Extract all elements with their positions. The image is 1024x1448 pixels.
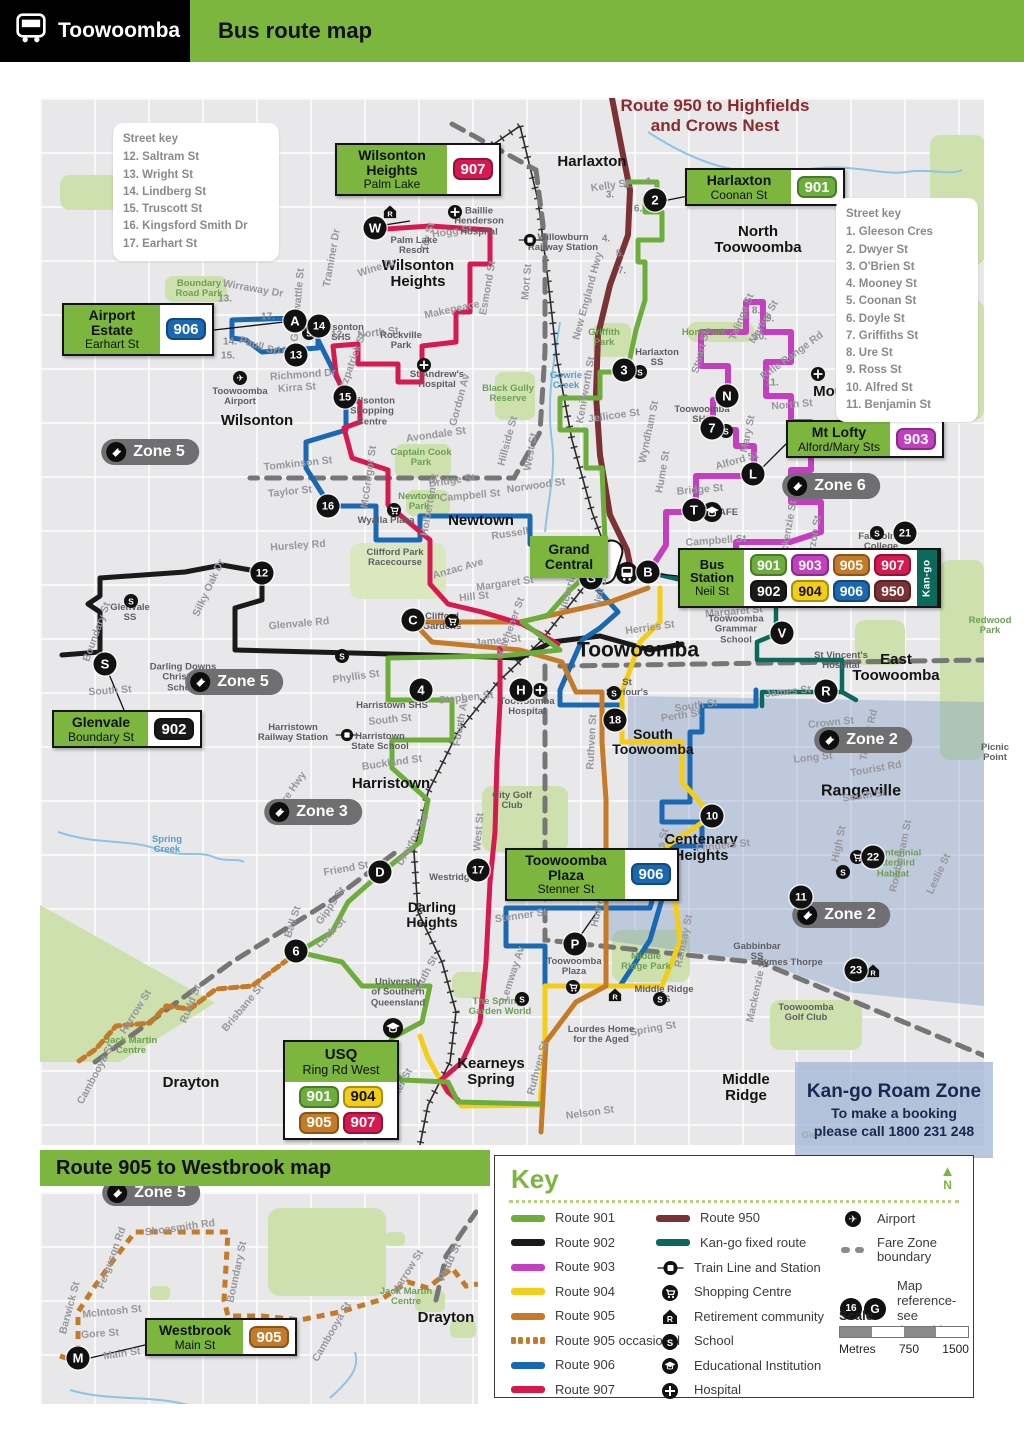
kango-roam-zone-box: Kan-go Roam Zone To make a booking pleas… (795, 1062, 993, 1158)
key-row-route-950: Route 950 (656, 1211, 760, 1226)
kango-box-title: Kan-go Roam Zone (801, 1081, 987, 1103)
key-row-route-906: Route 906 (511, 1358, 615, 1373)
page-title: Bus route map (218, 18, 372, 44)
key-label: Educational Institution (694, 1359, 821, 1374)
route-swatch-dashed (511, 1337, 545, 1344)
route-swatch (511, 1362, 545, 1369)
key-label: Kan-go fixed route (700, 1236, 806, 1251)
svg-text:S: S (667, 1337, 673, 1348)
key-label: Route 901 (555, 1211, 615, 1226)
key-row-train-line-and-station: Train Line and Station (656, 1260, 821, 1276)
app-header: Toowoomba Bus route map (0, 0, 1024, 62)
toowoomba-logo: Toowoomba (0, 0, 190, 62)
key-row-route-907: Route 907 (511, 1383, 615, 1398)
street-key-item: 9. Ross St (846, 362, 968, 379)
school-icon: S (656, 1334, 684, 1350)
key-row-airport: ✈Airport (839, 1211, 915, 1227)
key-label: Train Line and Station (694, 1261, 821, 1276)
key-row-route-905-occasional: Route 905 occasional (511, 1334, 680, 1349)
logo-text: Toowoomba (58, 19, 180, 43)
key-row-educational-institution: Educational Institution (656, 1358, 821, 1374)
street-key-item: 11. Benjamin St (846, 397, 968, 414)
route-swatch (511, 1288, 545, 1295)
street-key-item: 15. Truscott St (123, 201, 269, 218)
north-arrow: ▲N (940, 1164, 955, 1191)
key-row-hospital: Hospital (656, 1383, 741, 1399)
street-key-item: 4. Mooney St (846, 276, 968, 293)
key-label: Route 904 (555, 1285, 615, 1300)
scale-title: Scale (839, 1308, 873, 1323)
street-key-item: 2. Dwyer St (846, 242, 968, 259)
key-row-retirement-community: RRetirement community (656, 1309, 824, 1325)
svg-text:✈: ✈ (849, 1215, 857, 1226)
key-row-fare-zone-boundary: Fare Zone boundary (839, 1236, 973, 1266)
key-label: Route 903 (555, 1260, 615, 1275)
key-label: Route 905 (555, 1309, 615, 1324)
street-key-item: 12. Saltram St (123, 149, 269, 166)
street-key-left-items: 12. Saltram St13. Wright St14. Lindberg … (123, 149, 269, 253)
key-divider (509, 1200, 959, 1203)
fare-icon (839, 1245, 867, 1255)
key-title: Key (511, 1164, 559, 1195)
route-swatch (511, 1313, 545, 1320)
title-band: Bus route map (190, 0, 1024, 62)
key-label: School (694, 1334, 734, 1349)
street-key-item: 5. Coonan St (846, 293, 968, 310)
svg-text:R: R (667, 1314, 673, 1324)
street-key-left-title: Street key (123, 131, 269, 148)
street-key-item: 10. Alfred St (846, 380, 968, 397)
key-row-route-904: Route 904 (511, 1285, 615, 1300)
route-swatch (656, 1215, 690, 1222)
airport-icon: ✈ (839, 1211, 867, 1227)
key-label: Hospital (694, 1383, 741, 1398)
key-row-school: SSchool (656, 1334, 734, 1350)
place-label: Picnic Point (981, 743, 1009, 764)
street-key-item: 8. Ure St (846, 345, 968, 362)
key-label: Fare Zone boundary (877, 1236, 973, 1266)
street-key-right-title: Street key (846, 206, 968, 223)
route-swatch (511, 1386, 545, 1393)
hospital-icon (656, 1383, 684, 1399)
westbrook-banner: Route 905 to Westbrook map (40, 1150, 490, 1186)
key-label: Retirement community (694, 1310, 824, 1325)
key-label: Route 906 (555, 1358, 615, 1373)
street-key-item: 13. Wright St (123, 167, 269, 184)
street-key-item: 17. Earhart St (123, 236, 269, 253)
westbrook-inset-panel (40, 1192, 478, 1404)
street-key-right: Street key 1. Gleeson Cres2. Dwyer St3. … (836, 198, 978, 422)
kango-box-line3: please call 1800 231 248 (801, 1123, 987, 1139)
route-swatch (511, 1264, 545, 1271)
key-row-route-905: Route 905 (511, 1309, 615, 1324)
key-label: Route 950 (700, 1211, 760, 1226)
key-row-route-901: Route 901 (511, 1211, 615, 1226)
scale-bar (839, 1326, 969, 1338)
street-key-left: Street key 12. Saltram St13. Wright St14… (113, 123, 279, 261)
key-label: Route 907 (555, 1383, 615, 1398)
street-key-item: 3. O'Brien St (846, 259, 968, 276)
scale-labels: Metres7501500 (839, 1342, 969, 1356)
kango-box-line2: To make a booking (801, 1105, 987, 1121)
street-key-right-items: 1. Gleeson Cres2. Dwyer St3. O'Brien St4… (846, 224, 968, 414)
street-key-item: 14. Lindberg St (123, 184, 269, 201)
edu-icon (656, 1358, 684, 1374)
key-row-kan-go-fixed-route: Kan-go fixed route (656, 1236, 806, 1251)
route-swatch (511, 1215, 545, 1222)
street-key-item: 1. Gleeson Cres (846, 224, 968, 241)
street-key-item: 16. Kingsford Smith Dr (123, 218, 269, 235)
key-label: Shopping Centre (694, 1285, 792, 1300)
bus-logo-icon (14, 13, 48, 49)
key-row-route-902: Route 902 (511, 1236, 615, 1251)
route-swatch (511, 1239, 545, 1246)
route-950-note: Route 950 to Highfields and Crows Nest (621, 96, 810, 135)
route-swatch (656, 1239, 690, 1246)
key-row-route-903: Route 903 (511, 1260, 615, 1275)
retire-icon: R (656, 1309, 684, 1325)
key-label: Route 902 (555, 1236, 615, 1251)
street-key-item: 7. Griffiths St (846, 328, 968, 345)
key-label: Airport (877, 1212, 915, 1227)
key-row-shopping-centre: Shopping Centre (656, 1285, 792, 1301)
shopping-icon (656, 1285, 684, 1301)
train-icon (656, 1260, 684, 1276)
street-key-item: 6. Doyle St (846, 311, 968, 328)
key-panel: Key ▲N Route 901Route 902Route 903Route … (494, 1155, 974, 1398)
